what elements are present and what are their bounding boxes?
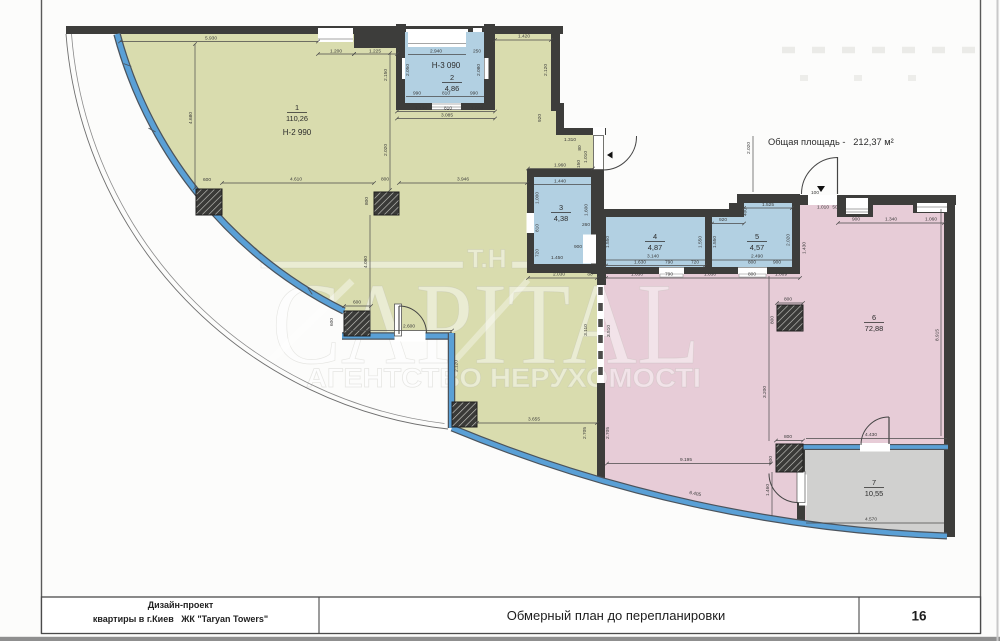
svg-text:8.915: 8.915 (935, 329, 941, 341)
svg-text:2.705: 2.705 (582, 427, 588, 439)
svg-text:800: 800 (748, 272, 756, 278)
svg-text:4,86: 4,86 (445, 84, 459, 93)
svg-text:1.630: 1.630 (704, 272, 716, 278)
svg-text:1.550: 1.550 (712, 236, 718, 248)
svg-text:150: 150 (576, 160, 582, 168)
svg-text:1.600: 1.600 (584, 204, 590, 216)
svg-text:100: 100 (811, 190, 819, 196)
svg-text:250: 250 (473, 49, 481, 55)
svg-text:5.930: 5.930 (205, 36, 217, 42)
svg-text:800: 800 (768, 456, 774, 464)
svg-text:260: 260 (582, 222, 590, 228)
svg-text:1.440: 1.440 (554, 179, 566, 185)
svg-text:4.430: 4.430 (865, 432, 877, 438)
svg-text:50: 50 (832, 205, 838, 211)
svg-text:400: 400 (743, 208, 749, 216)
svg-text:800: 800 (784, 434, 792, 440)
svg-text:1: 1 (295, 103, 299, 112)
svg-text:квартиры в г.Киев ЖК "Taryan: квартиры в г.Киев ЖК "Taryan Towers" (93, 614, 268, 624)
svg-text:Общая площадь - 212,37 м²: Общая площадь - 212,37 м² (768, 137, 894, 147)
svg-text:Н-2 990: Н-2 990 (283, 128, 312, 137)
svg-text:1.960: 1.960 (554, 163, 566, 169)
svg-text:1.130: 1.130 (415, 106, 427, 112)
svg-text:810: 810 (535, 224, 541, 232)
svg-text:3.655: 3.655 (528, 417, 540, 423)
svg-text:1.420: 1.420 (518, 34, 530, 40)
svg-text:900: 900 (574, 244, 582, 250)
svg-text:3.510: 3.510 (606, 325, 612, 337)
svg-text:990: 990 (470, 91, 478, 97)
svg-text:АГЕНТСТВО НЕРУХОМОСТІ: АГЕНТСТВО НЕРУХОМОСТІ (306, 363, 701, 393)
svg-text:2.030: 2.030 (553, 272, 565, 278)
svg-text:2.050: 2.050 (405, 64, 411, 76)
svg-text:800: 800 (364, 197, 370, 205)
svg-text:4,57: 4,57 (750, 243, 764, 252)
svg-text:800: 800 (748, 260, 756, 266)
svg-text:2.150: 2.150 (383, 69, 389, 81)
svg-text:900: 900 (852, 217, 860, 223)
svg-text:790: 790 (665, 260, 673, 266)
svg-text:1.450: 1.450 (551, 255, 563, 261)
svg-text:1.630: 1.630 (634, 260, 646, 266)
svg-text:990: 990 (413, 91, 421, 97)
svg-text:4,87: 4,87 (648, 243, 662, 252)
svg-text:600: 600 (329, 318, 335, 326)
svg-text:2.020: 2.020 (383, 144, 389, 156)
svg-text:600: 600 (203, 177, 211, 183)
svg-text:1.060: 1.060 (925, 217, 937, 223)
svg-text:Дизайн-проект: Дизайн-проект (148, 600, 214, 610)
svg-text:1.430: 1.430 (802, 242, 808, 254)
svg-text:920: 920 (719, 217, 727, 223)
svg-text:720: 720 (535, 249, 541, 257)
svg-text:1.525: 1.525 (762, 202, 774, 208)
svg-text:3: 3 (559, 203, 563, 212)
svg-text:4.680: 4.680 (188, 112, 194, 124)
svg-text:2.490: 2.490 (751, 254, 763, 260)
svg-text:3.200: 3.200 (762, 386, 768, 398)
svg-text:600: 600 (353, 300, 361, 306)
svg-text:2.020: 2.020 (746, 142, 752, 154)
svg-text:6: 6 (872, 313, 876, 322)
svg-text:800: 800 (770, 316, 776, 324)
svg-text:4.570: 4.570 (865, 517, 877, 523)
svg-text:80: 80 (577, 145, 583, 151)
svg-text:2.120: 2.120 (454, 360, 460, 372)
svg-text:800: 800 (381, 177, 389, 183)
svg-text:9.195: 9.195 (680, 457, 692, 463)
svg-text:1.010: 1.010 (583, 151, 589, 163)
svg-text:4.080: 4.080 (363, 256, 369, 268)
svg-text:1.000: 1.000 (535, 192, 541, 204)
svg-text:1.630: 1.630 (631, 272, 643, 278)
svg-text:800: 800 (784, 297, 792, 303)
svg-text:72,88: 72,88 (865, 324, 884, 333)
svg-text:3.085: 3.085 (441, 113, 453, 119)
svg-text:790: 790 (665, 272, 673, 278)
svg-text:1.550: 1.550 (605, 236, 611, 248)
svg-text:920: 920 (537, 114, 543, 122)
svg-text:10,55: 10,55 (865, 489, 884, 498)
svg-text:1.080: 1.080 (471, 106, 483, 112)
svg-text:2.020: 2.020 (786, 234, 792, 246)
svg-text:1.550: 1.550 (698, 236, 704, 248)
svg-text:2.705: 2.705 (605, 427, 611, 439)
svg-text:4,38: 4,38 (554, 214, 568, 223)
svg-text:810: 810 (444, 106, 452, 112)
svg-text:80: 80 (587, 272, 593, 278)
svg-text:110,26: 110,26 (286, 114, 308, 123)
svg-text:5: 5 (755, 232, 759, 241)
svg-text:2.940: 2.940 (430, 49, 442, 55)
svg-text:4.610: 4.610 (290, 177, 302, 183)
svg-text:2.120: 2.120 (543, 64, 549, 76)
svg-text:1.200: 1.200 (330, 49, 342, 55)
svg-text:2: 2 (450, 73, 454, 82)
svg-text:3.140: 3.140 (647, 254, 659, 260)
svg-text:Н-3 090: Н-3 090 (432, 61, 461, 70)
svg-text:2.080: 2.080 (476, 64, 482, 76)
svg-text:2.600: 2.600 (403, 324, 415, 330)
svg-text:3.110: 3.110 (583, 324, 589, 336)
svg-text:1.310: 1.310 (564, 137, 576, 143)
svg-text:7: 7 (872, 478, 876, 487)
svg-text:3.946: 3.946 (457, 177, 469, 183)
svg-text:1.010: 1.010 (817, 205, 829, 211)
svg-text:4: 4 (653, 232, 657, 241)
svg-text:1.460: 1.460 (765, 484, 771, 496)
svg-text:Обмерный план до перепланировк: Обмерный план до перепланировки (507, 608, 725, 623)
svg-text:900: 900 (773, 260, 781, 266)
svg-text:1.225: 1.225 (369, 49, 381, 55)
svg-text:720: 720 (691, 260, 699, 266)
svg-text:1.089: 1.089 (775, 272, 787, 278)
svg-text:1.340: 1.340 (885, 217, 897, 223)
svg-text:16: 16 (911, 609, 927, 624)
